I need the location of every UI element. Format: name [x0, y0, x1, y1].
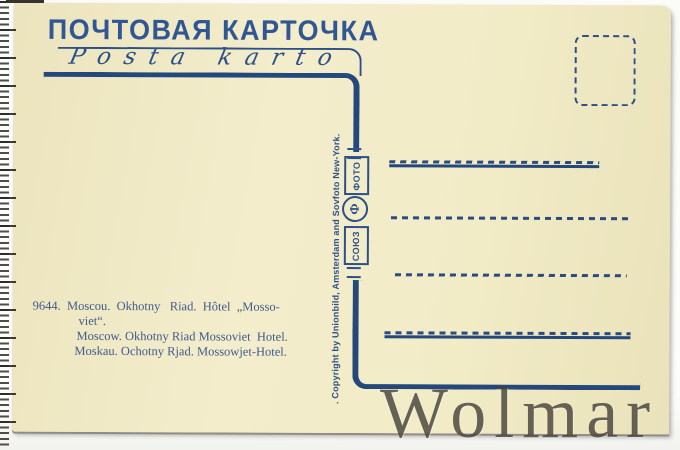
caption-line: Moscow. Okhotny Riad Mossoviet Hotel. [32, 329, 352, 345]
caption-line: Moskau. Ochotny Rjad. Mossowjet-Hotel. [32, 344, 352, 360]
address-line [395, 273, 627, 277]
watermark-wolmar: Wolmar [380, 372, 658, 450]
caption-block: 9644. Moscou. Okhotny Riad. Hôtel „Mosso… [32, 299, 352, 360]
perforated-edge [0, 0, 22, 450]
divider-top-line [43, 72, 359, 152]
caption-line: 9644. Moscou. Okhotny Riad. Hôtel „Mosso… [33, 299, 353, 315]
address-line [391, 216, 631, 220]
stamp-box [574, 35, 635, 106]
postcard: ПОЧТОВАЯ КАРТОЧКА Posta karto ФОТО Ф СОЮ… [12, 3, 671, 435]
postcard-scan: ПОЧТОВАЯ КАРТОЧКА Posta karto ФОТО Ф СОЮ… [0, 0, 680, 450]
address-line [14, 3, 671, 6]
scan-edge-mark [6, 0, 44, 3]
logo-word-foto: ФОТО [344, 156, 369, 195]
logo-separator-dashes [347, 267, 361, 278]
logo-word-soyuz: СОЮЗ [344, 226, 369, 265]
perforation-ticks-long [0, 1, 16, 449]
postcard-title-esperanto: Posta karto [67, 44, 348, 71]
caption-line: viet“. [33, 314, 353, 330]
logo-emblem-circle: Ф [342, 196, 368, 222]
postcard-title-russian: ПОЧТОВАЯ КАРТОЧКА [48, 14, 380, 48]
address-line [14, 3, 671, 6]
